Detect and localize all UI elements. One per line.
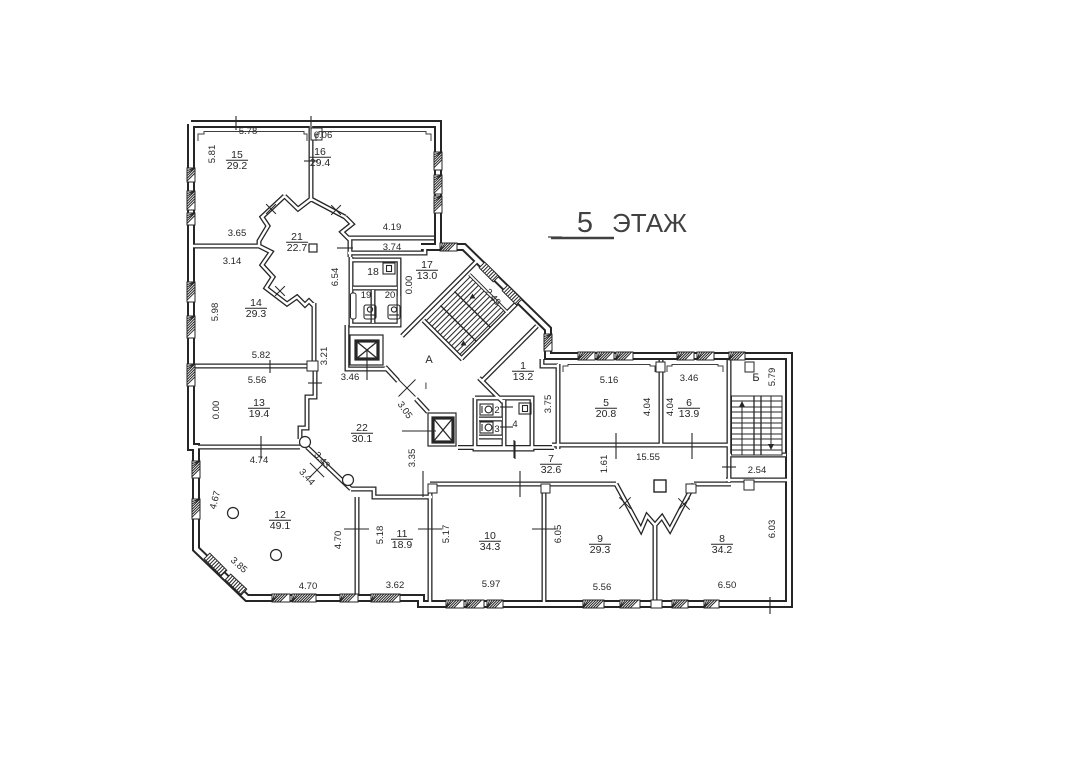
svg-text:29.4: 29.4 <box>310 157 331 169</box>
svg-text:3.46: 3.46 <box>680 373 699 384</box>
svg-text:22.7: 22.7 <box>287 242 308 254</box>
svg-text:29.2: 29.2 <box>227 160 248 172</box>
svg-text:30.1: 30.1 <box>352 433 373 445</box>
svg-text:4.70: 4.70 <box>333 531 344 550</box>
svg-text:13.2: 13.2 <box>513 371 534 383</box>
svg-text:ЭТАЖ: ЭТАЖ <box>612 208 687 238</box>
svg-text:3.46: 3.46 <box>341 372 360 383</box>
svg-text:А: А <box>425 354 433 366</box>
svg-text:20: 20 <box>385 290 396 301</box>
svg-text:0.00: 0.00 <box>211 401 222 420</box>
svg-text:18: 18 <box>367 266 379 278</box>
svg-text:3.62: 3.62 <box>386 580 405 591</box>
svg-text:18.9: 18.9 <box>392 539 413 551</box>
svg-text:34.2: 34.2 <box>712 544 733 556</box>
svg-text:3.14: 3.14 <box>223 256 242 267</box>
svg-text:3.74: 3.74 <box>383 242 402 253</box>
svg-text:2: 2 <box>494 405 499 416</box>
svg-text:3.75: 3.75 <box>543 395 554 414</box>
svg-text:4.70: 4.70 <box>299 581 318 592</box>
svg-text:29.3: 29.3 <box>590 544 611 556</box>
svg-text:4.74: 4.74 <box>250 455 269 466</box>
svg-text:5.17: 5.17 <box>441 525 452 544</box>
svg-text:I: I <box>425 381 428 392</box>
svg-text:15.55: 15.55 <box>636 452 660 463</box>
svg-text:2.54: 2.54 <box>748 465 767 476</box>
svg-text:3: 3 <box>494 424 499 435</box>
svg-text:5: 5 <box>577 207 593 239</box>
svg-text:5.79: 5.79 <box>767 368 778 387</box>
svg-text:3.65: 3.65 <box>228 228 247 239</box>
svg-text:6.54: 6.54 <box>330 268 341 287</box>
svg-text:Б: Б <box>752 372 759 384</box>
svg-text:5.81: 5.81 <box>207 145 218 164</box>
svg-text:20.8: 20.8 <box>596 408 617 420</box>
svg-text:5.97: 5.97 <box>482 579 501 590</box>
svg-text:6.05: 6.05 <box>553 525 564 544</box>
svg-text:5.82: 5.82 <box>252 350 271 361</box>
svg-text:34.3: 34.3 <box>480 541 501 553</box>
svg-text:1.61: 1.61 <box>599 455 610 474</box>
svg-text:6.03: 6.03 <box>767 520 778 539</box>
svg-text:5.78: 5.78 <box>239 126 258 137</box>
svg-text:5.18: 5.18 <box>375 526 386 545</box>
svg-text:0.00: 0.00 <box>404 276 415 295</box>
svg-text:3.35: 3.35 <box>407 449 418 468</box>
svg-text:49.1: 49.1 <box>270 520 291 532</box>
svg-text:19.4: 19.4 <box>249 408 270 420</box>
svg-text:4.04: 4.04 <box>642 398 653 417</box>
svg-text:4.19: 4.19 <box>383 222 402 233</box>
svg-text:3.21: 3.21 <box>319 347 330 366</box>
svg-text:5.56: 5.56 <box>593 582 612 593</box>
svg-text:5.56: 5.56 <box>248 375 267 386</box>
svg-text:6.06: 6.06 <box>314 130 333 141</box>
svg-text:4: 4 <box>512 419 517 430</box>
svg-text:4.04: 4.04 <box>665 398 676 417</box>
svg-text:13.9: 13.9 <box>679 408 700 420</box>
svg-text:29.3: 29.3 <box>246 308 267 320</box>
svg-text:19: 19 <box>361 290 372 301</box>
svg-text:13.0: 13.0 <box>417 270 438 282</box>
svg-text:32.6: 32.6 <box>541 464 562 476</box>
svg-text:5.98: 5.98 <box>210 303 221 322</box>
svg-text:6.50: 6.50 <box>718 580 737 591</box>
svg-text:5.16: 5.16 <box>600 375 619 386</box>
